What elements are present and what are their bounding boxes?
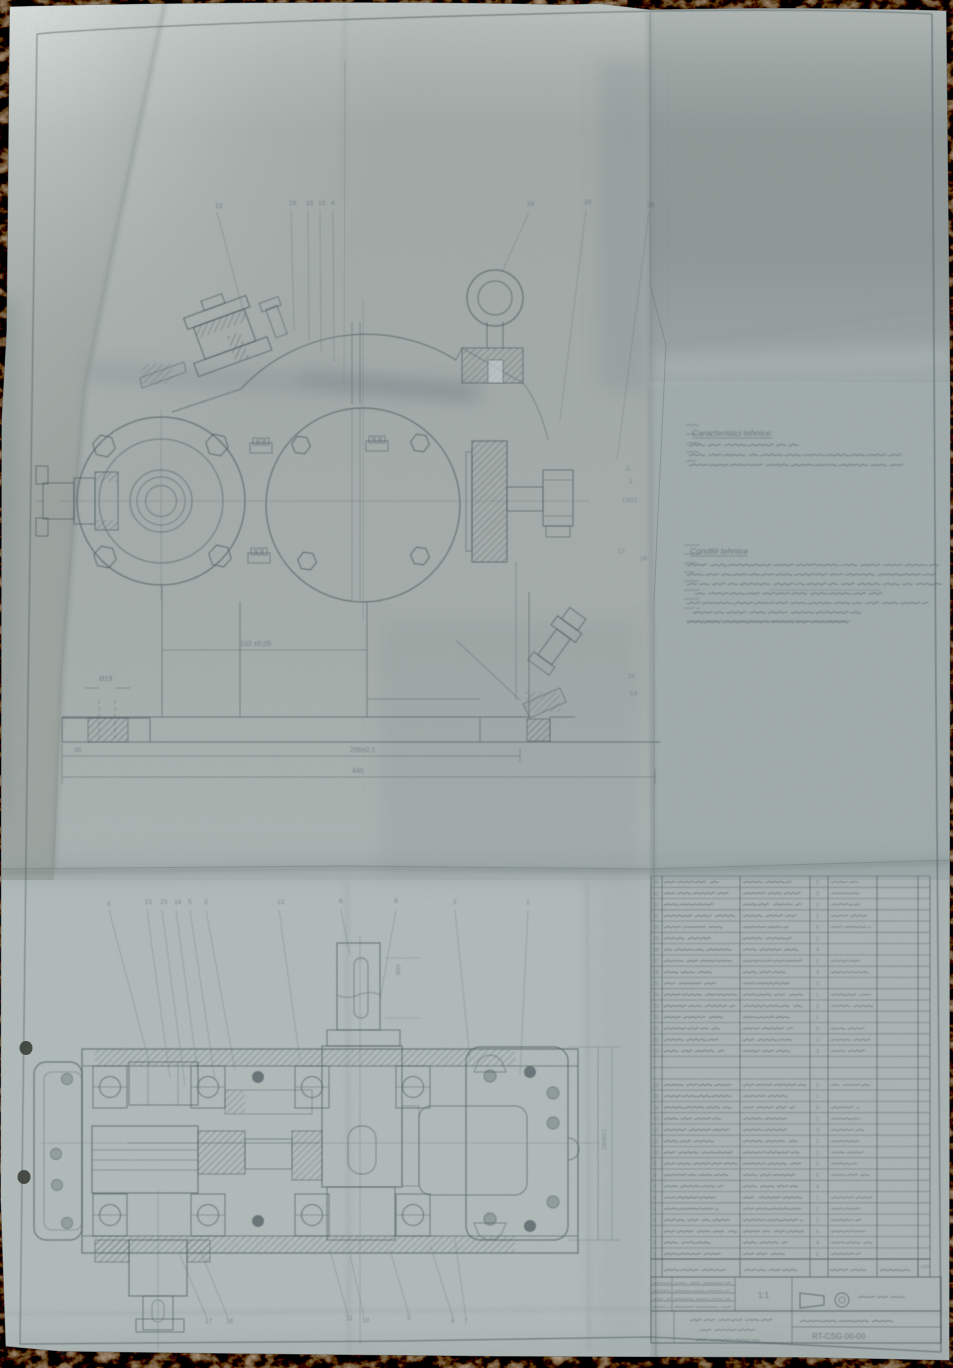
svg-text:23: 23 [160, 899, 168, 906]
svg-text:445: 445 [352, 768, 364, 775]
svg-text:13: 13 [277, 899, 285, 906]
svg-text:3: 3 [816, 891, 819, 897]
svg-text:12: 12 [318, 200, 326, 207]
svg-text:15: 15 [628, 674, 635, 680]
svg-text:Ø30: Ø30 [60, 1351, 70, 1357]
svg-text:16: 16 [653, 1083, 659, 1089]
svg-text:2: 2 [816, 936, 819, 942]
svg-text:7: 7 [653, 1184, 656, 1190]
svg-text:25: 25 [653, 981, 659, 987]
svg-text:6: 6 [816, 1105, 819, 1111]
svg-text:21: 21 [653, 1027, 659, 1033]
svg-text:2: 2 [653, 1241, 656, 1247]
svg-text:2: 2 [453, 899, 457, 906]
svg-text:1:1: 1:1 [758, 1291, 770, 1300]
svg-text:1: 1 [816, 1094, 819, 1100]
svg-text:11: 11 [653, 1139, 659, 1145]
svg-text:1: 1 [816, 1015, 819, 1021]
svg-text:4: 4 [816, 970, 819, 976]
svg-text:32: 32 [653, 903, 659, 909]
svg-text:8: 8 [816, 1173, 819, 1179]
svg-text:26: 26 [653, 970, 659, 976]
svg-text:5: 5 [653, 1207, 656, 1213]
svg-text:2,6: 2,6 [630, 691, 638, 697]
svg-text:6: 6 [816, 1162, 819, 1168]
svg-text:6: 6 [339, 898, 343, 905]
svg-text:102 ±0,05: 102 ±0,05 [240, 641, 271, 648]
svg-text:20: 20 [653, 1038, 659, 1044]
svg-text:4: 4 [331, 200, 335, 207]
svg-text:2: 2 [816, 880, 819, 886]
svg-text:16: 16 [226, 1318, 234, 1325]
svg-text:8: 8 [816, 1027, 819, 1033]
svg-text:29: 29 [653, 936, 659, 942]
svg-text:24: 24 [527, 201, 535, 208]
svg-text:7: 7 [464, 1318, 468, 1325]
svg-text:1,5/3,2: 1,5/3,2 [622, 498, 638, 504]
svg-text:33: 33 [653, 891, 659, 897]
svg-text:1: 1 [816, 1151, 819, 1157]
svg-text:2: 2 [816, 1117, 819, 1123]
svg-text:2: 2 [816, 903, 819, 909]
svg-text:4: 4 [816, 1241, 819, 1247]
svg-text:4: 4 [653, 1218, 656, 1224]
svg-text:22: 22 [653, 1015, 659, 1021]
svg-text:Ø19: Ø19 [99, 676, 112, 683]
svg-text:1: 1 [816, 1207, 819, 1213]
svg-text:8: 8 [451, 1318, 455, 1325]
svg-text:24: 24 [653, 993, 659, 999]
svg-text:1: 1 [816, 993, 819, 999]
svg-text:6: 6 [816, 1229, 819, 1235]
svg-text:5: 5 [107, 901, 111, 908]
svg-text:6: 6 [816, 1083, 819, 1089]
svg-text:29: 29 [584, 199, 592, 206]
svg-text:30: 30 [653, 925, 659, 931]
svg-text:5: 5 [188, 899, 192, 906]
svg-text:9: 9 [407, 1315, 411, 1322]
svg-text:30: 30 [74, 747, 82, 754]
svg-text:28: 28 [647, 202, 655, 209]
svg-text:Ø45: Ø45 [396, 965, 402, 975]
svg-text:286±0,1: 286±0,1 [350, 747, 375, 754]
svg-text:4: 4 [816, 948, 819, 954]
svg-text:27: 27 [653, 959, 659, 965]
svg-text:190±0,1: 190±0,1 [602, 1128, 608, 1150]
svg-text:4: 4 [816, 1184, 819, 1190]
svg-text:2: 2 [816, 1139, 819, 1145]
svg-text:31: 31 [653, 914, 659, 920]
svg-text:14: 14 [653, 1105, 659, 1111]
svg-text:3: 3 [816, 981, 819, 987]
svg-text:Caracteristici tehnice:: Caracteristici tehnice: [692, 428, 774, 438]
svg-text:8: 8 [816, 925, 819, 931]
svg-text:2.: 2. [626, 466, 631, 472]
svg-text:1: 1 [816, 1196, 819, 1202]
svg-text:3: 3 [653, 1229, 656, 1235]
svg-text:11: 11 [346, 1315, 353, 1322]
svg-text:13: 13 [215, 203, 223, 210]
svg-text:U/M: U/M [921, 1264, 930, 1269]
svg-text:15: 15 [653, 1094, 659, 1100]
svg-text:23: 23 [653, 1004, 659, 1010]
svg-text:⋁5: ⋁5 [639, 556, 647, 562]
svg-text:1: 1 [816, 959, 819, 965]
svg-text:13: 13 [306, 200, 314, 207]
svg-text:1: 1 [526, 899, 530, 906]
svg-text:13: 13 [653, 1117, 659, 1123]
svg-text:28: 28 [653, 948, 659, 954]
svg-text:3: 3 [816, 1004, 819, 1010]
svg-text:Conditii tehnice: Conditii tehnice [690, 546, 748, 556]
svg-text:17: 17 [205, 1318, 213, 1325]
svg-text:3: 3 [816, 1128, 819, 1134]
svg-text:14: 14 [174, 899, 182, 906]
svg-text:1: 1 [816, 914, 819, 920]
svg-text:2: 2 [816, 1252, 819, 1258]
svg-text:RT-CSG-00-00: RT-CSG-00-00 [812, 1332, 866, 1341]
svg-text:21: 21 [145, 899, 153, 906]
svg-text:10: 10 [362, 1317, 370, 1324]
svg-text:8: 8 [394, 898, 398, 905]
svg-text:19: 19 [653, 1049, 659, 1055]
svg-text:1: 1 [653, 1252, 656, 1258]
svg-text:2: 2 [816, 1218, 819, 1224]
svg-text:8: 8 [653, 1173, 656, 1179]
svg-text:34: 34 [653, 880, 659, 886]
svg-text:3: 3 [204, 899, 208, 906]
svg-text:19: 19 [289, 200, 297, 207]
svg-text:10: 10 [653, 1151, 659, 1157]
svg-text:12: 12 [653, 1128, 659, 1134]
svg-text:3: 3 [816, 1038, 819, 1044]
svg-text:1,7: 1,7 [618, 549, 625, 555]
svg-text:6: 6 [653, 1196, 656, 1202]
svg-text:3: 3 [816, 1049, 819, 1055]
svg-text:9: 9 [653, 1162, 656, 1168]
